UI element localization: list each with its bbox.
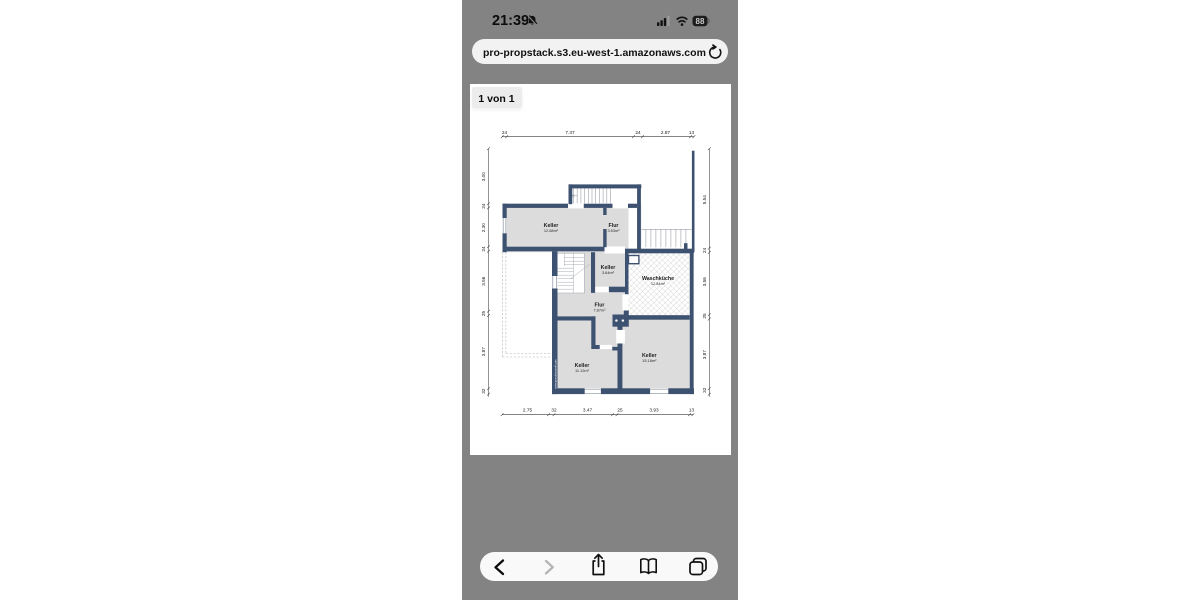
svg-text:24: 24 bbox=[481, 203, 486, 209]
svg-text:24: 24 bbox=[481, 246, 486, 252]
svg-text:12.68m²: 12.68m² bbox=[543, 228, 558, 233]
svg-text:11.12m²: 11.12m² bbox=[575, 368, 590, 373]
svg-text:2.30: 2.30 bbox=[481, 223, 486, 233]
svg-text:12.84m²: 12.84m² bbox=[650, 281, 665, 286]
svg-text:7.87m²: 7.87m² bbox=[593, 308, 606, 313]
svg-text:88: 88 bbox=[696, 16, 705, 25]
svg-text:32: 32 bbox=[701, 387, 706, 393]
svg-text:7.37: 7.37 bbox=[565, 130, 575, 135]
svg-text:www.grundriss-profi.com: www.grundriss-profi.com bbox=[553, 359, 557, 389]
svg-text:3.87: 3.87 bbox=[701, 350, 706, 360]
svg-text:3.00: 3.00 bbox=[481, 172, 486, 182]
svg-text:25: 25 bbox=[617, 408, 623, 413]
svg-text:32: 32 bbox=[481, 388, 486, 394]
svg-text:13: 13 bbox=[688, 130, 694, 135]
svg-text:32: 32 bbox=[551, 408, 557, 413]
svg-text:3.64m²: 3.64m² bbox=[601, 270, 614, 275]
svg-text:24: 24 bbox=[701, 248, 706, 254]
svg-text:25: 25 bbox=[481, 311, 486, 317]
svg-text:3.93: 3.93 bbox=[649, 408, 659, 413]
svg-text:25: 25 bbox=[701, 313, 706, 319]
svg-text:3.47: 3.47 bbox=[582, 408, 592, 413]
svg-text:2.87: 2.87 bbox=[660, 130, 670, 135]
svg-text:3.53m²: 3.53m² bbox=[607, 228, 620, 233]
svg-text:24: 24 bbox=[501, 130, 507, 135]
svg-text:13: 13 bbox=[688, 408, 694, 413]
svg-text:3.87: 3.87 bbox=[481, 347, 486, 357]
svg-text:24: 24 bbox=[635, 130, 641, 135]
svg-text:15.18m²: 15.18m² bbox=[642, 358, 657, 363]
svg-text:3.56: 3.56 bbox=[481, 277, 486, 287]
svg-text:2.75: 2.75 bbox=[522, 408, 532, 413]
svg-text:5.54: 5.54 bbox=[701, 195, 706, 205]
svg-text:3.56: 3.56 bbox=[701, 277, 706, 287]
